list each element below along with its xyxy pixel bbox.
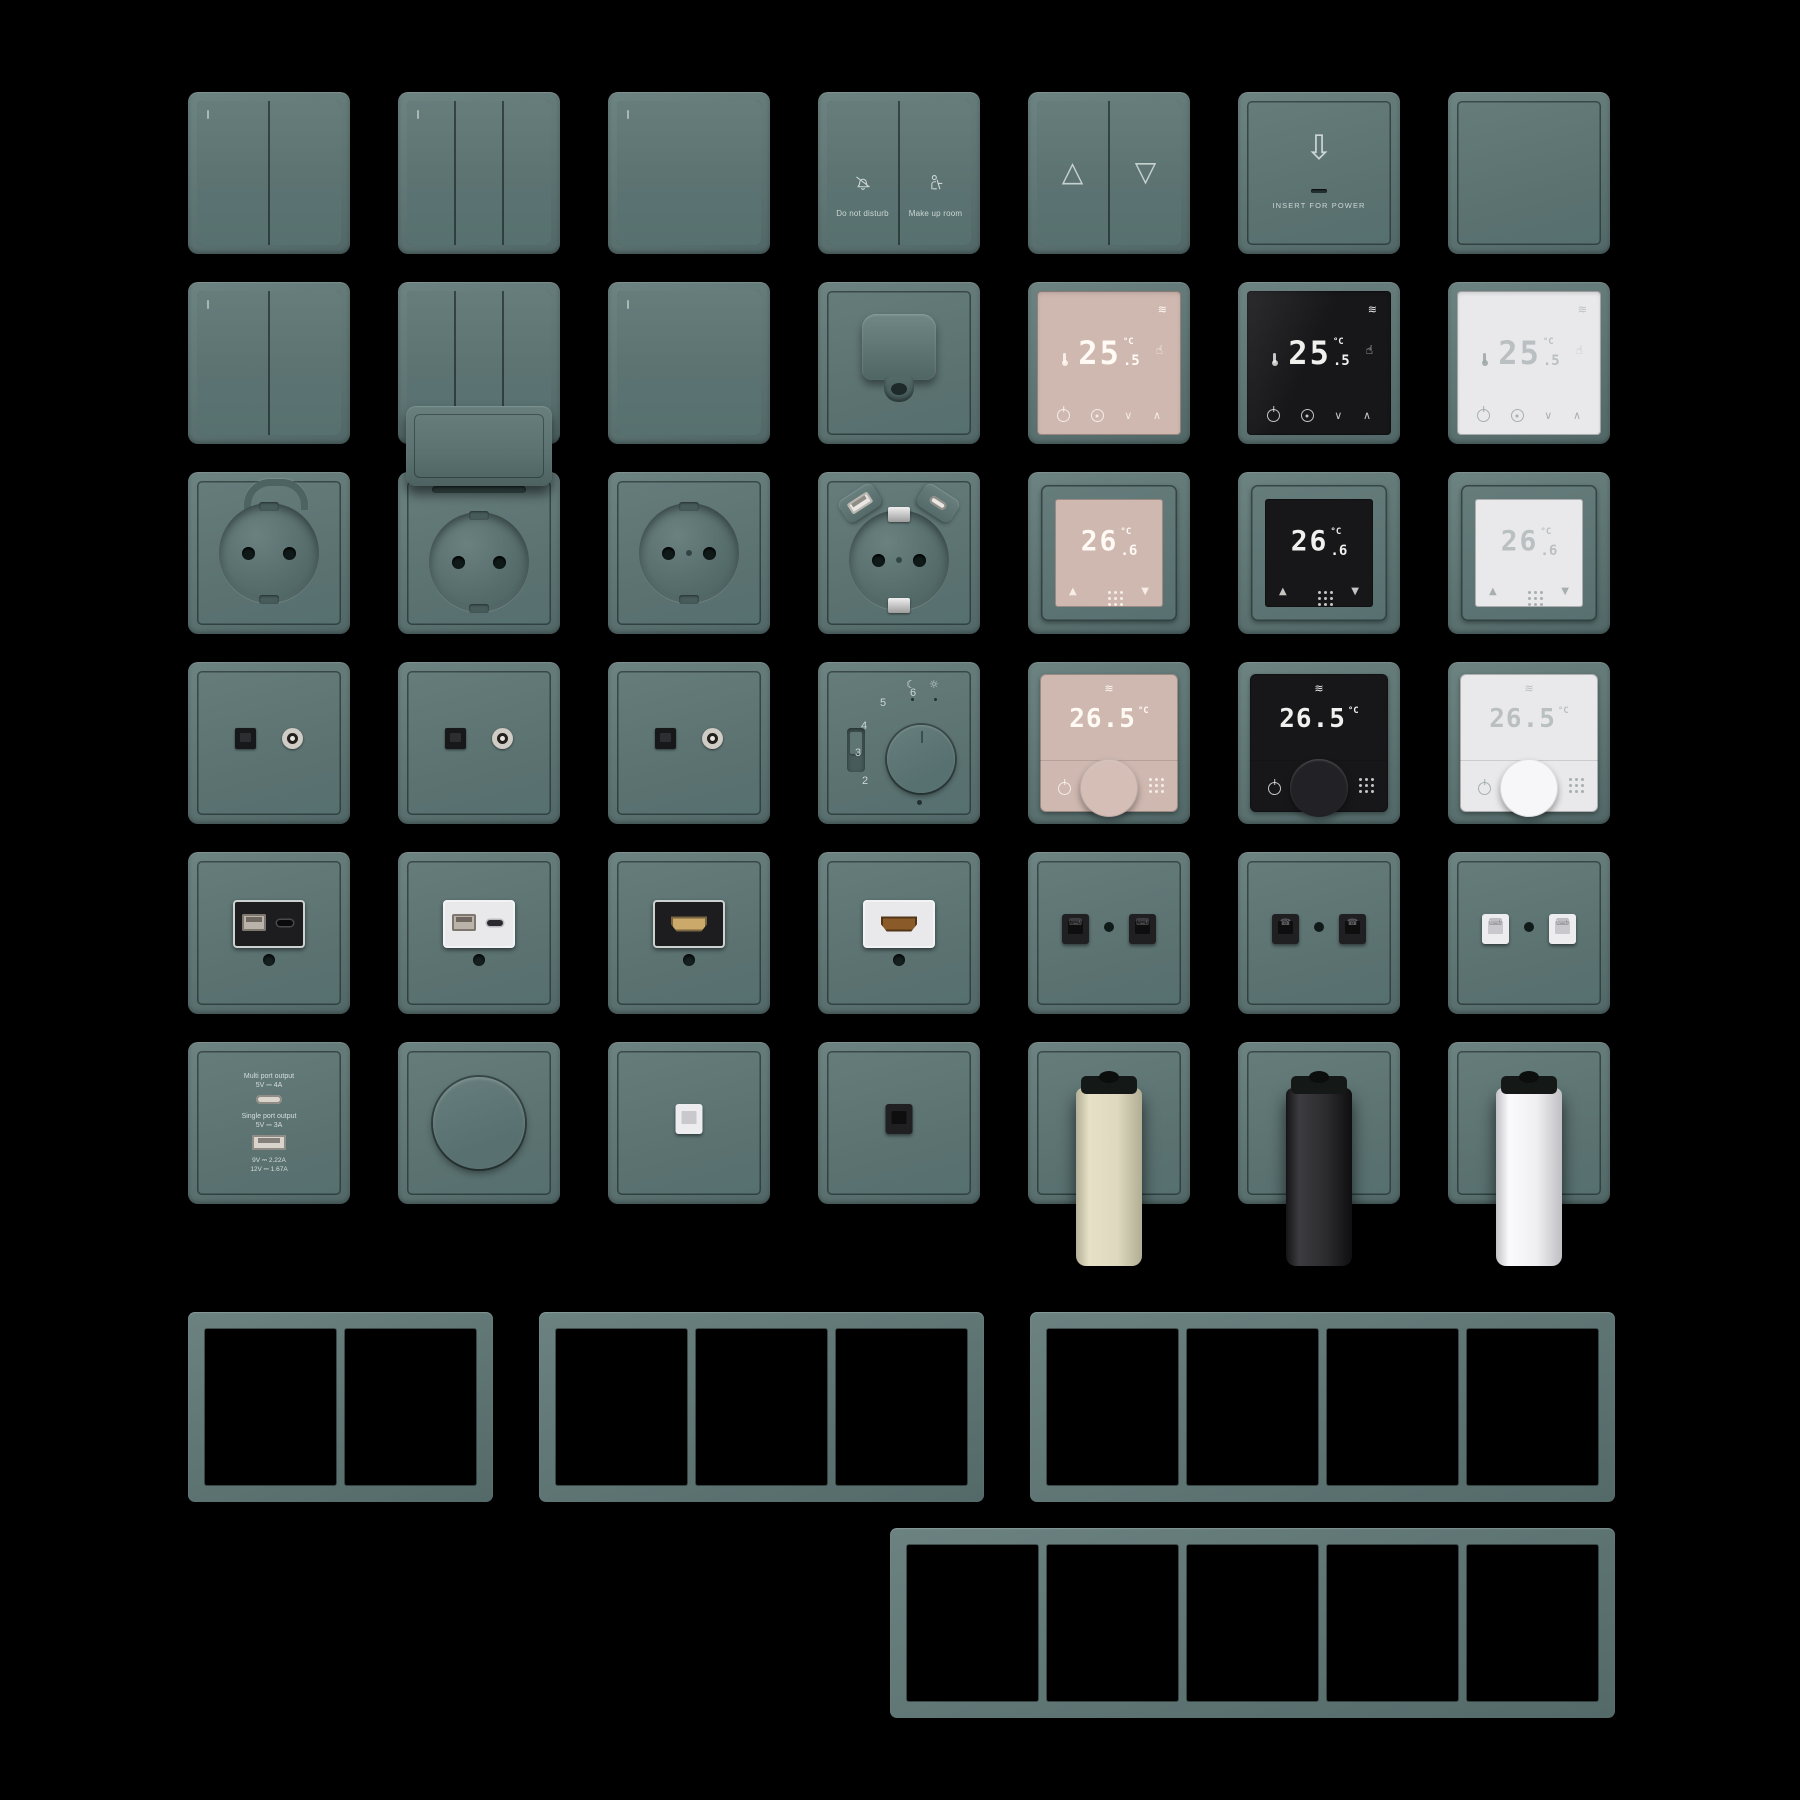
rocker-group: △ ▽ [1037,101,1181,245]
housekeeper-icon [926,173,946,193]
socket-lid-closed [188,472,350,634]
thermostat-square-black: 26 °C.6 ▲ ▼ [1238,472,1400,634]
frame-window [1047,1329,1178,1485]
thermostat-screen[interactable]: ≋ 25 °C.5 ☝ ∨ ∧ [1037,291,1181,435]
rocker-left[interactable] [197,101,268,245]
temp-value: 26 [1501,527,1539,555]
temp-up-icon[interactable]: ▲ [1279,587,1287,597]
touch-controls: ▲ ▼ [1489,587,1569,597]
screw [683,954,695,966]
socket-hole-left [242,547,255,560]
temp-unit: °C [1558,706,1569,717]
menu-grid-icon[interactable] [1149,778,1152,781]
thermostat-touch-black: ≋ 25 °C.5 ☝ ∨ ∧ [1238,282,1400,444]
thermostat-square-pink: 26 °C.6 ▲ ▼ [1028,472,1190,634]
actuator-cylinder[interactable] [1496,1088,1562,1266]
power-icon[interactable] [1268,782,1281,795]
thermostat-knob[interactable] [1290,759,1348,817]
temp-up-icon[interactable]: ▲ [1069,587,1077,597]
blinds-up-button[interactable]: △ [1037,101,1108,245]
rj45-jack-right[interactable]: ⌨ [1129,914,1156,944]
outlet-face [407,671,551,815]
temp-unit: °C [1138,706,1149,717]
rj45-double-black: ⌨ ⌨ [1028,852,1190,1014]
sun-icon: ☼ [929,678,939,691]
coax-port[interactable] [492,728,513,749]
valve-actuator-black [1238,1042,1400,1204]
indicator-led [207,300,209,309]
cable-exit-spout [884,376,914,402]
usb-a-port[interactable] [242,914,266,931]
socket-schuko [608,472,770,634]
touch-controls: ▲ ▼ [1279,587,1359,597]
thermostat-knob-white: ≋ 26.5 °C [1448,662,1610,824]
outlet-face [197,671,341,815]
rocker-right[interactable] [268,291,341,435]
socket-hole-left [452,556,465,569]
screw [893,954,905,966]
rocker-group: Do not disturb Make up room [827,101,971,245]
temp-decimal: .6 [1330,544,1347,559]
temp-down-icon[interactable]: ▼ [1561,587,1569,597]
rj11-double-black: ☎ ☎ [1238,852,1400,1014]
touch-controls: ∨ ∧ [1267,409,1371,422]
power-icon[interactable] [1267,409,1280,422]
socket-hole-right [913,554,926,567]
multi-port-spec: 5V ⎓ 4A [256,1081,283,1090]
switch-2gang [188,92,350,254]
dial-index-dot [917,800,922,805]
usb-a-port[interactable] [252,1135,286,1150]
multi-port-title: Multi port output [244,1072,294,1081]
usb-module-white [398,852,560,1014]
center-dot [1104,922,1114,932]
socket-center-dot [686,550,692,556]
blank-plate [1448,92,1610,254]
frame-5gang [890,1528,1615,1718]
earth-notch-bottom [259,595,279,604]
temp-unit: °C [1543,337,1554,348]
temp-value: 26 [1291,527,1329,555]
heating-icon: ≋ [1104,682,1113,695]
frame-window [1187,1545,1318,1701]
usb-c-port[interactable] [277,920,293,926]
dial-scale-5: 5 [876,697,890,709]
frame-window [907,1545,1038,1701]
usb-c-port[interactable] [487,920,503,926]
actuator-cylinder[interactable] [1286,1088,1352,1266]
insert-for-power-label: INSERT FOR POWER [1247,201,1391,210]
usb-c-port[interactable] [928,495,947,512]
coax-port[interactable] [702,728,723,749]
thermostat-screen[interactable]: ≋ 25 °C.5 ☝ ∨ ∧ [1247,291,1391,435]
hdmi-port[interactable] [671,917,707,932]
keystone-single-white [608,1042,770,1204]
touch-controls: ∨ ∧ [1477,409,1581,422]
rj11-jack-left[interactable]: ☎ [1272,914,1299,944]
socket-hole-right [283,547,296,560]
thermometer-icon [1273,353,1276,363]
temp-value: 25 [1288,337,1331,369]
temperature-readout: 26 °C.6 [1055,527,1163,559]
temp-value: 25 [1498,337,1541,369]
temp-down-icon[interactable]: ▼ [1351,587,1359,597]
power-icon[interactable] [1057,409,1070,422]
temp-down-icon[interactable]: ∨ [1334,410,1342,421]
blinds-switch: △ ▽ [1028,92,1190,254]
phone-icon: ☎ [1272,919,1299,928]
rocker-group [407,101,551,245]
thermostat-screen[interactable]: ≋ 25 °C.5 ☝ ∨ ∧ [1457,291,1601,435]
usb-charger-plate: Multi port output 5V ⎓ 4A Single port ou… [188,1042,350,1204]
rocker-group [617,101,761,245]
cable-outlet-hood[interactable] [862,314,936,380]
rocker-group [197,101,341,245]
rocker-right[interactable] [502,101,551,245]
open-lid-flap[interactable] [406,406,552,486]
center-dot [1524,922,1534,932]
usb-module [233,900,305,948]
socket-hole-left [662,547,675,560]
frame-2gang [188,1312,493,1502]
rocker-right[interactable] [268,101,341,245]
temp-down-icon[interactable]: ∨ [1544,410,1552,421]
thermostat-module: ≋ 26.5 °C [1250,674,1388,812]
frame-window [1187,1329,1318,1485]
rocker[interactable] [617,101,761,245]
rocker-group [617,291,761,435]
thermostat-screen[interactable]: 26 °C.6 ▲ ▼ [1265,499,1373,607]
temperature-readout: 26.5 °C [1460,706,1598,732]
touch-hand-icon: ☝ [1366,343,1373,357]
dimmer-knob[interactable] [433,1077,525,1169]
usb-a-port[interactable] [452,914,476,931]
temperature-dial-knob[interactable] [887,725,955,793]
temperature-readout: 26.5 °C [1040,706,1178,732]
card-slot-face[interactable]: ⇩ INSERT FOR POWER [1247,101,1391,245]
schuko-socket[interactable] [639,503,739,603]
thermostat-square-white: 26 °C.6 ▲ ▼ [1448,472,1610,634]
frame-window [345,1329,476,1485]
temp-value: 26.5 [1279,706,1346,732]
blinds-up-icon: △ [1062,155,1084,188]
indicator-led [627,300,629,309]
temp-unit: °C [1348,706,1359,717]
frame-window [205,1329,336,1485]
heating-icon: ≋ [1158,303,1167,316]
module-face [1247,861,1391,1005]
rocker-left[interactable] [407,101,454,245]
thermostat-screen[interactable]: 26 °C.6 ▲ ▼ [1475,499,1583,607]
frame-window [1467,1545,1598,1701]
keystone-jack[interactable] [886,1104,913,1134]
bell-slash-icon [853,173,873,193]
switch-1gang-alt [608,282,770,444]
temp-value: 26 [1081,527,1119,555]
cable-outlet [818,282,980,444]
thermostat-module: ≋ 26.5 °C [1460,674,1598,812]
product-grid-scene: Do not disturb Make up room △ [0,0,1800,1800]
alt-spec-line1: 9V ⎓ 2.22A [252,1156,286,1165]
socket-hole-left [872,554,885,567]
touch-hand-icon: ☝ [1576,343,1583,357]
tv-data-outlet-a [188,662,350,824]
dial-scale-4: 4 [857,720,871,732]
rj11-jack-right[interactable]: ☎ [1339,914,1366,944]
tv-data-outlet-c [608,662,770,824]
rocker[interactable] [617,291,761,435]
heating-icon: ≋ [1524,682,1533,695]
keystone-jack[interactable] [676,1104,703,1134]
actuator-cylinder[interactable] [1076,1088,1142,1266]
schuko-socket[interactable] [849,510,949,610]
make-up-room-label: Make up room [900,209,971,219]
mode-icon[interactable] [1091,409,1104,422]
menu-grid-icon[interactable] [1528,591,1531,594]
center-dot [1314,922,1324,932]
socket-center-dot [896,557,902,563]
outlet-face [617,671,761,815]
dial-scale-3: 3 [851,747,865,759]
coax-port[interactable] [282,728,303,749]
temp-unit: °C [1120,527,1131,538]
socket-schuko-usb [818,472,980,634]
socket-lid-open [398,472,560,634]
computer-icon: ⌨ [1062,919,1089,928]
insert-arrow-icon: ⇩ [1247,131,1391,165]
temp-up-icon[interactable]: ▲ [1489,587,1497,597]
heating-icon: ≋ [1368,303,1377,316]
frame-window [1047,1545,1178,1701]
temp-up-icon[interactable]: ∧ [1363,410,1371,421]
power-icon[interactable] [1477,409,1490,422]
frame-window [556,1329,687,1485]
screw [263,954,275,966]
usb-module-black [188,852,350,1014]
touch-controls: ▲ ▼ [1069,587,1149,597]
earth-notch-top [469,511,489,520]
switch-2gang-alt [188,282,350,444]
thermostat-knob[interactable] [1080,759,1138,817]
thermostat-touch-white: ≋ 25 °C.5 ☝ ∨ ∧ [1448,282,1610,444]
temp-unit: °C [1123,337,1134,348]
temp-unit: °C [1540,527,1551,538]
menu-grid-icon[interactable] [1318,591,1321,594]
touch-controls: ∨ ∧ [1057,409,1161,422]
blank-face [1457,101,1601,245]
dial-thermostat: ☾ ☼ 6 5 4 3 2 [818,662,980,824]
rj45-double-white: ⌨ ⌨ [1448,852,1610,1014]
card-status-led [1311,189,1327,193]
frame-window [696,1329,827,1485]
menu-grid-icon[interactable] [1359,778,1362,781]
alt-spec-line2: 12V ⎓ 1.67A [250,1165,287,1174]
frames-row [188,1312,1615,1502]
hdmi-module [863,900,935,948]
heating-icon: ≋ [1578,303,1587,316]
touch-hand-icon: ☝ [1156,343,1163,357]
rotary-dimmer [398,1042,560,1204]
hotel-service-switch: Do not disturb Make up room [818,92,980,254]
mode-icon[interactable] [1511,409,1524,422]
frame-4gang [1030,1312,1615,1502]
power-icon[interactable] [1478,782,1491,795]
temperature-readout: 26 °C.6 [1265,527,1373,559]
frame-window [1327,1329,1458,1485]
temp-down-icon[interactable]: ▼ [1141,587,1149,597]
thermostat-module: ≋ 26.5 °C [1040,674,1178,812]
temp-up-icon[interactable]: ∧ [1573,410,1581,421]
temp-decimal: .5 [1333,354,1350,369]
rocker-group [197,291,341,435]
usb-c-port[interactable] [256,1095,282,1104]
earth-clip-bottom [888,598,910,613]
indicator-led [417,110,419,119]
module-face [1037,861,1181,1005]
rocker-middle[interactable] [454,101,503,245]
frame-window [1327,1545,1458,1701]
computer-icon: ⌨ [1129,919,1156,928]
socket-hole-right [493,556,506,569]
temperature-readout: 26 °C.6 [1475,527,1583,559]
switch-1gang [608,92,770,254]
temperature-readout: 25 °C.5 [1247,337,1391,369]
do-not-disturb-button[interactable]: Do not disturb [827,101,898,245]
tv-data-outlet-b [398,662,560,824]
heating-icon: ≋ [1314,682,1323,695]
socket-hole-right [703,547,716,560]
mode-icon[interactable] [1301,409,1314,422]
temp-value: 26.5 [1489,706,1556,732]
frame-3gang [539,1312,984,1502]
thermostat-knob[interactable] [1500,759,1558,817]
hdmi-module-black [608,852,770,1014]
frame-window [836,1329,967,1485]
usb-module [443,900,515,948]
usb-a-port[interactable] [847,491,874,514]
schuko-socket[interactable] [429,512,529,612]
power-icon[interactable] [1058,782,1071,795]
data-port[interactable] [445,728,466,749]
earth-notch-bottom [679,595,699,604]
dial-scale-2: 2 [858,775,872,787]
menu-grid-icon[interactable] [1569,778,1572,781]
rj45-jack-right[interactable]: ⌨ [1549,914,1576,944]
mode-dot-right [934,698,937,701]
computer-icon: ⌨ [1549,919,1576,928]
temp-value: 25 [1078,337,1121,369]
rj45-jack-left[interactable]: ⌨ [1482,914,1509,944]
menu-grid-icon[interactable] [1108,591,1111,594]
valve-actuator-cream [1028,1042,1190,1204]
blinds-down-button[interactable]: ▽ [1108,101,1181,245]
temp-value: 26.5 [1069,706,1136,732]
screw [473,954,485,966]
module-face [1457,861,1601,1005]
earth-notch-top [259,502,279,511]
keystone-single-black [818,1042,980,1204]
thermostat-touch-pink: ≋ 25 °C.5 ☝ ∨ ∧ [1028,282,1190,444]
thermostat-knob-pink: ≋ 26.5 °C [1028,662,1190,824]
rocker-left[interactable] [197,291,268,435]
hdmi-module-white [818,852,980,1014]
plates-grid: Do not disturb Make up room △ [188,92,1610,1204]
data-port[interactable] [655,728,676,749]
key-card-holder: ⇩ INSERT FOR POWER [1238,92,1400,254]
frame-window [1467,1329,1598,1485]
data-port[interactable] [235,728,256,749]
temp-down-icon[interactable]: ∨ [1124,410,1132,421]
temp-decimal: .6 [1120,544,1137,559]
schuko-socket[interactable] [219,503,319,603]
earth-clip-top [888,507,910,522]
blinds-down-icon: ▽ [1135,155,1157,188]
temp-unit: °C [1333,337,1344,348]
single-port-spec: 5V ⎓ 3A [256,1121,283,1130]
earth-notch-top [679,502,699,511]
lid-hinge [432,486,526,493]
hdmi-module [653,900,725,948]
do-not-disturb-label: Do not disturb [827,209,898,219]
indicator-led [207,110,209,119]
thermostat-knob-black: ≋ 26.5 °C [1238,662,1400,824]
indicator-led [627,110,629,119]
make-up-room-button[interactable]: Make up room [898,101,971,245]
valve-actuator-white [1448,1042,1610,1204]
thermostat-screen[interactable]: 26 °C.6 ▲ ▼ [1055,499,1163,607]
single-port-title: Single port output [242,1112,297,1121]
rj45-jack-left[interactable]: ⌨ [1062,914,1089,944]
temp-decimal: .6 [1540,544,1557,559]
temp-up-icon[interactable]: ∧ [1153,410,1161,421]
switch-3gang [398,92,560,254]
charger-labels: Multi port output 5V ⎓ 4A Single port ou… [197,1051,341,1195]
temperature-readout: 26.5 °C [1250,706,1388,732]
temp-decimal: .5 [1123,354,1140,369]
earth-notch-bottom [469,604,489,613]
computer-icon: ⌨ [1482,919,1509,928]
temp-decimal: .5 [1543,354,1560,369]
temp-unit: °C [1330,527,1341,538]
phone-icon: ☎ [1339,919,1366,928]
hdmi-port[interactable] [881,917,917,932]
dial-scale-6: 6 [906,687,920,699]
